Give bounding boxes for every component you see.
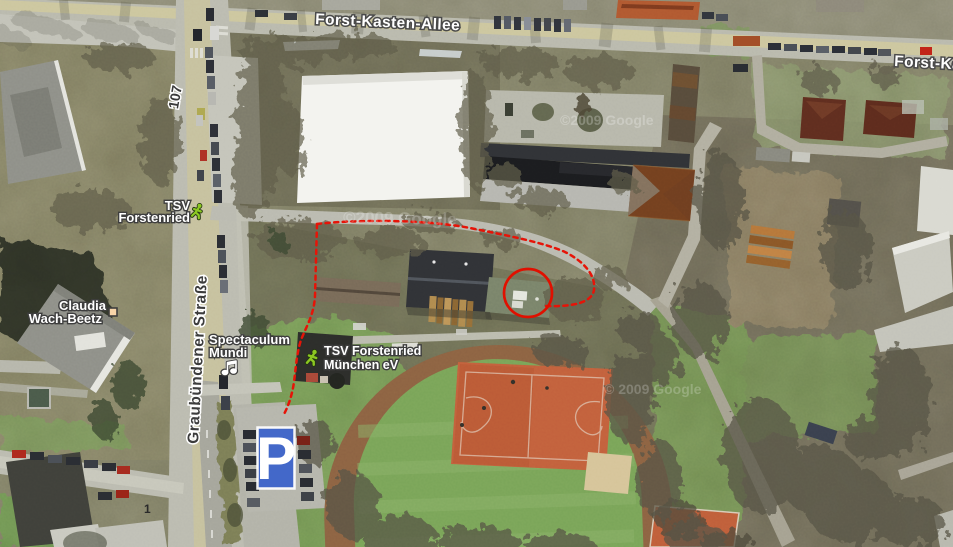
svg-text:P: P bbox=[256, 425, 296, 492]
svg-text:©2009 Google: ©2009 Google bbox=[343, 208, 457, 229]
svg-text:Wach-Beetz: Wach-Beetz bbox=[29, 311, 103, 326]
svg-text:© 2009 Google: © 2009 Google bbox=[604, 381, 702, 397]
svg-text:1: 1 bbox=[144, 502, 151, 516]
svg-text:München eV: München eV bbox=[324, 358, 399, 372]
svg-text:Forstenried: Forstenried bbox=[118, 210, 190, 225]
svg-text:Forst-Ka: Forst-Ka bbox=[894, 53, 953, 73]
svg-text:©2009 Google: ©2009 Google bbox=[560, 112, 654, 128]
svg-text:TSV Forstenried: TSV Forstenried bbox=[324, 344, 421, 358]
svg-text:Mundi: Mundi bbox=[209, 345, 247, 360]
